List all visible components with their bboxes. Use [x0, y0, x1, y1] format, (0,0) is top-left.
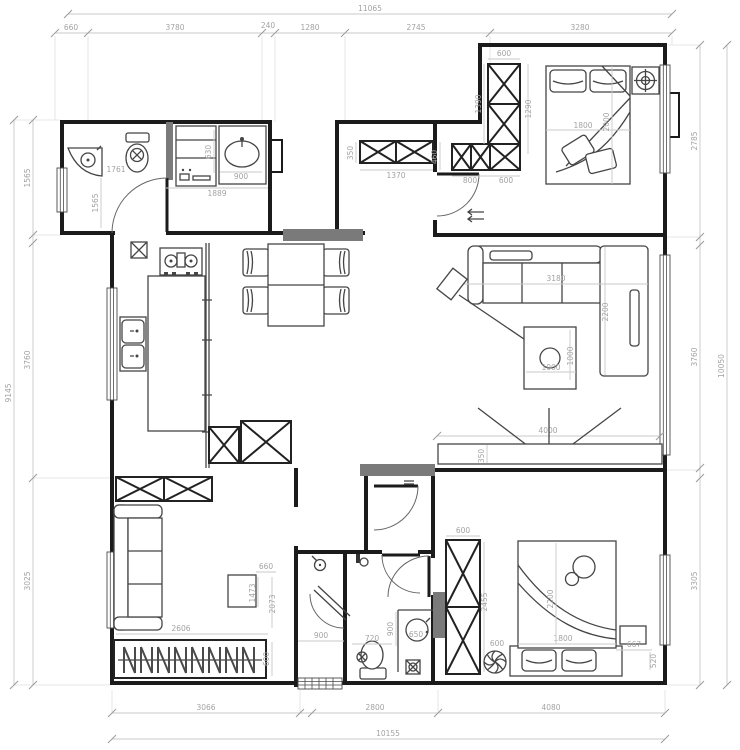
dim-label: 600: [497, 49, 512, 58]
dimension-row-top: 11065 660 3780 240 1280 2745 3280: [51, 4, 676, 37]
bathroom-bottom: 900 720 650 900: [298, 554, 433, 679]
dim-label: 600: [262, 652, 271, 667]
dim-label: 650: [409, 630, 424, 639]
ceiling-fan-icon: [484, 651, 506, 673]
door-arc: [374, 486, 418, 530]
wardrobe-tall: [446, 540, 480, 674]
ceiling-light-icon: [632, 67, 659, 94]
shoe-cabinet: [360, 141, 433, 163]
dining-area: [243, 244, 349, 326]
dim-label: 2455: [480, 592, 489, 611]
bedroom-bottom-left: 2606 600 660 1473 2073: [114, 477, 277, 678]
dim-label: 1761: [106, 165, 125, 174]
floor-plan-canvas: 11065 660 3780 240 1280 2745 3280 9145 1…: [0, 0, 740, 750]
tv-cabinet: [438, 444, 662, 464]
wardrobe-hangers: [114, 640, 266, 678]
dim-label: 2073: [268, 594, 277, 613]
dim-label: 4080: [541, 703, 560, 712]
bedroom-top-right: 600 1390 1290 800 600 1800 2000: [452, 49, 659, 185]
dim-label: 900: [314, 631, 329, 640]
dim-label: 600: [490, 639, 505, 648]
gas-stove-icon: [160, 248, 202, 275]
dim-label: 900: [386, 622, 395, 637]
dim-label: 2785: [690, 131, 699, 150]
window: [107, 288, 117, 400]
kitchen-sink-icon: [120, 317, 146, 371]
shower-head-icon: [356, 554, 368, 566]
dim-label: 1390: [474, 94, 483, 113]
dim-label: 2000: [602, 112, 611, 131]
window: [57, 168, 67, 212]
wardrobe-tall: [488, 64, 520, 144]
dim-label: 2200: [546, 589, 555, 608]
dim-label: 3760: [690, 347, 699, 366]
dim-label: 1370: [386, 171, 405, 180]
dim-label: 900: [234, 172, 249, 181]
sofa-three-seat: [114, 505, 162, 630]
dim-label: 1889: [207, 189, 226, 198]
dim-label: 350: [346, 146, 355, 161]
dining-chair: [243, 249, 269, 276]
dim-label: 600: [499, 176, 514, 185]
gray-wall-segment: [166, 122, 173, 180]
dim-label-left-overall: 9145: [4, 383, 13, 402]
window: [660, 65, 670, 173]
dim-label-top-overall: 11065: [358, 4, 382, 13]
window: [298, 678, 342, 689]
dim-label: 3025: [23, 571, 32, 590]
dim-label: 3066: [196, 703, 215, 712]
dim-label: 3180: [546, 274, 565, 283]
dim-label-right-overall: 10050: [717, 354, 726, 378]
dim-label: 667: [627, 640, 642, 649]
dim-label: 1473: [248, 583, 257, 602]
door-arc: [112, 178, 167, 233]
dim-label-bottom-overall: 10155: [376, 729, 400, 738]
window: [660, 555, 670, 645]
window: [660, 255, 670, 455]
dim-label: 1290: [524, 99, 533, 118]
cabinet-low: [452, 144, 520, 170]
wall-cabinet: [116, 477, 212, 501]
dim-label: 1000: [541, 363, 560, 372]
dim-label: 720: [365, 634, 380, 643]
bedroom-bottom-right: 600 2455 600 1800 2200 667 520: [388, 526, 658, 676]
dim-label: 3305: [690, 571, 699, 590]
bed-double: [510, 541, 622, 676]
dim-label: 4000: [538, 426, 557, 435]
dim-label: 520: [649, 654, 658, 669]
dim-label: 2800: [365, 703, 384, 712]
dim-label: 240: [261, 21, 276, 30]
toilet-icon: [357, 641, 386, 679]
dim-label: 1565: [23, 168, 32, 187]
toilet-icon: [126, 133, 149, 172]
dim-label: 600: [456, 526, 471, 535]
dim-label: 350: [477, 449, 486, 464]
dining-chair: [323, 287, 349, 314]
dim-label: 460: [430, 150, 439, 165]
sliding-door-panel: [433, 592, 447, 638]
pillow: [550, 70, 586, 92]
shower-head-icon: [312, 556, 326, 571]
dim-label: 1280: [300, 23, 319, 32]
dimension-row-bottom: 3066 2800 4080 10155: [108, 703, 669, 743]
entrance-arrows-icon: [468, 209, 484, 222]
dim-label: 3780: [165, 23, 184, 32]
dim-label: 1565: [91, 193, 100, 212]
dim-label: 630: [204, 145, 213, 160]
dim-label: 2745: [406, 23, 425, 32]
kitchen-island: [148, 276, 205, 431]
dim-label: 1800: [573, 121, 592, 130]
dimension-col-right: 2785 3760 3305 10050: [690, 41, 731, 689]
dim-label: 660: [259, 562, 274, 571]
dining-chair: [243, 287, 269, 314]
floor-drain-icon: [406, 660, 420, 674]
living-room: 3180 2200 1000 1000 4000 350: [433, 246, 664, 464]
corridor: [374, 481, 418, 530]
gray-wall-segment: [360, 464, 435, 476]
vent-box-icon: [131, 242, 147, 258]
floor-plan-page: 11065 660 3780 240 1280 2745 3280 9145 1…: [0, 0, 740, 750]
door-arc: [382, 555, 420, 593]
corner-sink-icon: [68, 148, 102, 176]
dim-label: 2606: [171, 624, 190, 633]
gray-wall-segment: [283, 229, 363, 241]
dim-label: 3760: [23, 350, 32, 369]
dimension-col-left: 9145 1565 3760 3025: [4, 116, 37, 689]
dim-label: 660: [64, 23, 79, 32]
dim-label: 800: [463, 176, 478, 185]
dim-label: 2200: [601, 302, 610, 321]
dim-label: 3280: [570, 23, 589, 32]
dining-chair: [323, 249, 349, 276]
dim-label: 1000: [566, 346, 575, 365]
storage-box: [209, 421, 291, 463]
